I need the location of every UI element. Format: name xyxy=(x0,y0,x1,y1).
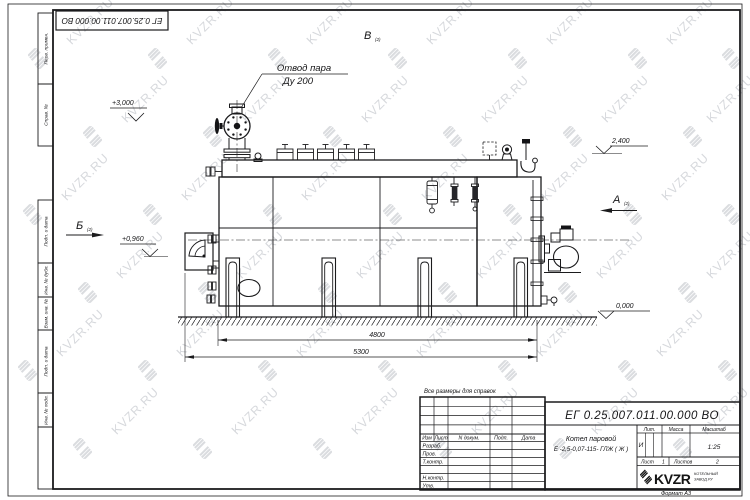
ground-line xyxy=(178,317,597,326)
tb-row-tkontr: Т.контр. xyxy=(423,460,444,466)
title-block: Изм Лист N докум. Подп. Дата Разраб. Про… xyxy=(420,397,740,497)
tb-header-data: Дата xyxy=(521,436,536,442)
view-marker-v-ref: (2) xyxy=(375,37,381,42)
boiler-body xyxy=(219,160,543,306)
tb-sheets-value: 2 xyxy=(715,460,719,466)
margin-label: Инв. № дубл. xyxy=(44,265,50,295)
format-label: Формат А3 xyxy=(661,491,692,497)
boiler-side-view xyxy=(178,100,630,326)
tb-name-line1: Котел паровой xyxy=(566,435,616,443)
kvzr-logo: KVZR КОТЕЛЬНЫЙ ЗАВОД.РУ xyxy=(641,470,719,487)
kvzr-logo-text: KVZR xyxy=(654,471,691,487)
tb-scale-label: Масштаб xyxy=(702,427,726,433)
view-marker-v: В xyxy=(364,30,371,42)
elevation-mid: +0,960 xyxy=(122,236,144,243)
tb-lit-value: И xyxy=(639,442,644,449)
tb-designation: ЕГ 0.25.007.011.00.000 ВО xyxy=(565,410,719,422)
view-marker-b: Б xyxy=(76,220,83,232)
tb-sheet-value: 1 xyxy=(662,460,665,466)
leader-line1: Отвод пара xyxy=(277,63,331,74)
margin-label: Взам. инв. № xyxy=(44,299,50,329)
burner-assembly xyxy=(185,233,219,270)
tb-mass-label: Масса xyxy=(669,427,684,433)
tb-header-izm: Изм xyxy=(422,436,432,442)
blowdown-valve xyxy=(541,296,557,306)
drawing-canvas: Перв. примен. Справ. № Подп. и дата Инв.… xyxy=(0,0,750,500)
margin-label: Перв. примен. xyxy=(44,33,50,65)
elevation-ground: 0,000 xyxy=(616,303,634,310)
margin-label: Подп. и дата xyxy=(44,216,50,246)
tb-header-list: Лист xyxy=(433,436,448,442)
manhole-oval xyxy=(238,280,260,297)
lifting-lug xyxy=(255,153,261,159)
water-level-gauges xyxy=(427,177,479,213)
elevation-right: 2,400 xyxy=(611,138,630,145)
kvzr-logo-icon xyxy=(641,470,652,483)
tb-row-prov: Пров. xyxy=(423,452,437,458)
kvzr-logo-sub2: ЗАВОД.РУ xyxy=(694,478,713,482)
tb-header-doc: N докум. xyxy=(459,436,480,442)
drawing-sheet: KVZR.RUKVZR.RUKVZR.RUKVZR.RUKVZR.RUKVZR.… xyxy=(0,0,750,500)
view-marker-a-ref: (2) xyxy=(624,201,630,206)
tb-name-line2: Е -2,5-0,07-115- ГЛЖ ( Ж ) xyxy=(554,446,628,453)
view-marker-b-ref: (2) xyxy=(87,227,93,232)
tb-lit-label: Лит. xyxy=(643,427,656,433)
tb-scale-value: 1:25 xyxy=(708,444,721,451)
margin-label: Подп. и дата xyxy=(44,346,50,376)
feed-pump xyxy=(539,226,581,273)
support-legs xyxy=(226,258,528,317)
sheet-frame xyxy=(8,4,742,496)
leader-line2: Ду 200 xyxy=(282,76,314,87)
elevation-top: +3,000 xyxy=(112,100,134,107)
dim-inner: 4800 xyxy=(369,332,385,339)
corner-stamp: ЕГ 0.25.007.011.00.000 ВО xyxy=(56,11,168,30)
kvzr-logo-sub1: КОТЕЛЬНЫЙ xyxy=(694,472,718,476)
margin-label: Инв. № подл. xyxy=(44,395,50,425)
tb-sheet-label: Лист xyxy=(640,460,654,466)
tb-row-nkontr: Н.контр. xyxy=(423,476,445,482)
margin-label: Справ. № xyxy=(44,104,50,126)
drum-top-hatches xyxy=(277,145,375,161)
steam-leader-note: Отвод пара Ду 200 xyxy=(241,63,348,108)
reference-note: Все размеры для справок xyxy=(424,389,497,395)
margin-stamps: Перв. примен. Справ. № Подп. и дата Инв.… xyxy=(38,13,53,489)
tb-row-utv: Утв. xyxy=(423,484,435,490)
tb-header-podp: Подп. xyxy=(494,436,508,442)
siphon-pipe xyxy=(521,161,535,172)
steam-outlet-valve xyxy=(215,104,262,162)
dim-outer: 5300 xyxy=(353,349,369,356)
drum-right-fittings xyxy=(483,139,537,172)
tb-sheets-label: Листов xyxy=(673,460,693,466)
view-marker-a: А xyxy=(612,194,620,206)
corner-stamp-number: ЕГ 0.25.007.011.00.000 ВО xyxy=(61,16,162,25)
safety-valve-base xyxy=(502,154,512,160)
tb-row-razrab: Разраб. xyxy=(423,444,442,450)
view-markers: Б (2) В (2) А (2) xyxy=(66,30,637,237)
handwheel xyxy=(215,118,219,134)
